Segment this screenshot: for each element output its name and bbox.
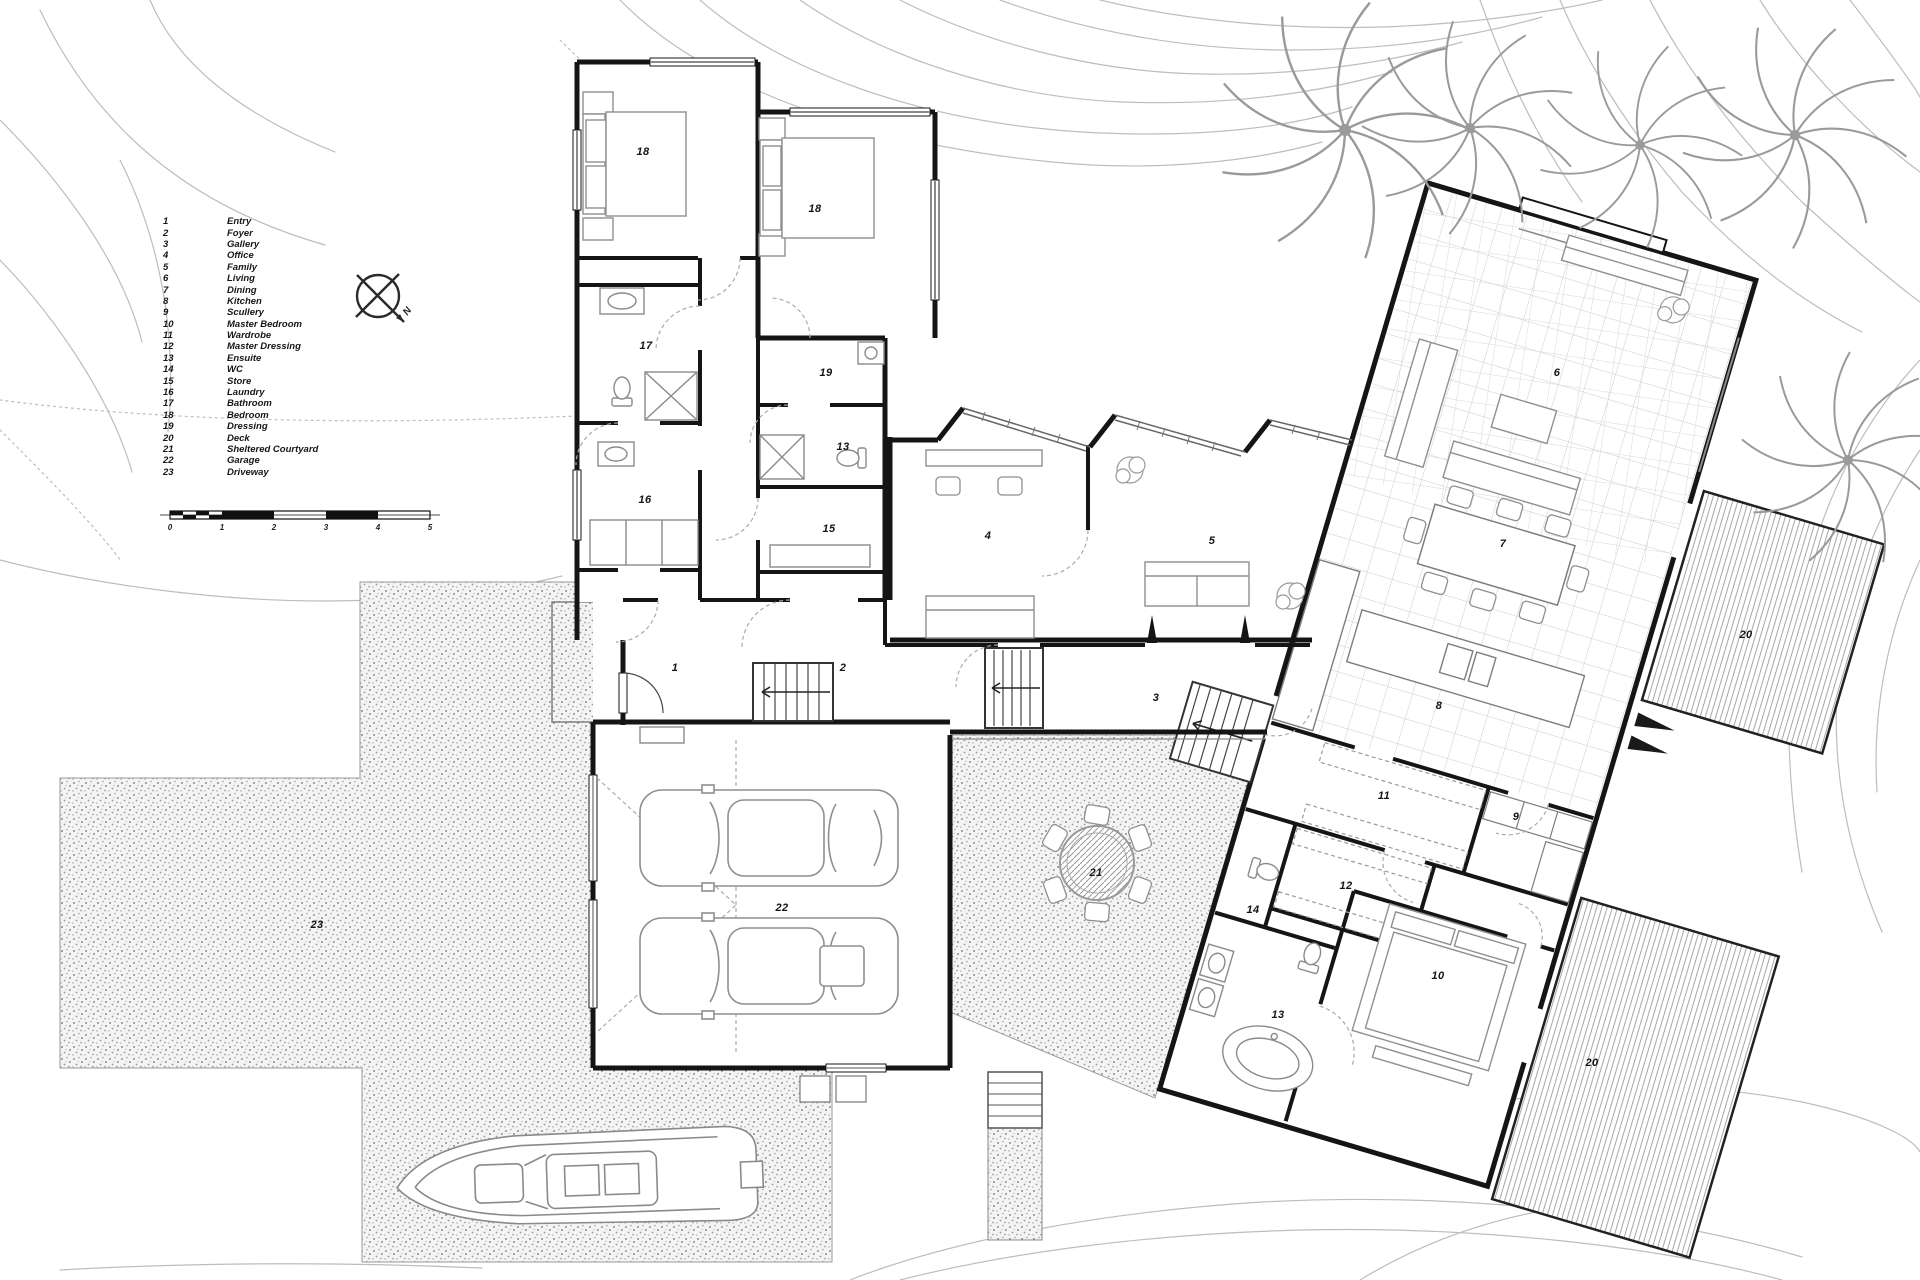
desk-chair bbox=[936, 477, 960, 495]
legend-row: 5Family bbox=[163, 262, 318, 273]
legend-row: 9Scullery bbox=[163, 307, 318, 318]
room-label-ensuite: 13 bbox=[1271, 1009, 1284, 1021]
floor-plan-drawing bbox=[0, 0, 1920, 1280]
legend-label: Kitchen bbox=[227, 296, 262, 307]
legend-row: 16Laundry bbox=[163, 387, 318, 398]
legend-number: 22 bbox=[163, 455, 227, 466]
legend-label: Deck bbox=[227, 433, 250, 444]
legend-label: Foyer bbox=[227, 228, 253, 239]
legend-label: Sheltered Courtyard bbox=[227, 444, 318, 455]
room-label-bathroom: 17 bbox=[639, 340, 652, 352]
legend-label: Dining bbox=[227, 285, 257, 296]
scale-tick: 2 bbox=[272, 523, 276, 532]
legend-number: 23 bbox=[163, 467, 227, 478]
legend-row: 4Office bbox=[163, 250, 318, 261]
legend-number: 7 bbox=[163, 285, 227, 296]
legend-row: 20Deck bbox=[163, 432, 318, 443]
room-label-scullery: 9 bbox=[1513, 811, 1520, 823]
legend-label: Ensuite bbox=[227, 353, 261, 364]
legend-row: 21Sheltered Courtyard bbox=[163, 444, 318, 455]
legend-number: 6 bbox=[163, 273, 227, 284]
legend-row: 23Driveway bbox=[163, 467, 318, 478]
legend-label: Driveway bbox=[227, 467, 269, 478]
family-furniture bbox=[1145, 562, 1249, 606]
palm-tree bbox=[1670, 7, 1920, 265]
legend-label: WC bbox=[227, 364, 243, 375]
legend-row: 22Garage bbox=[163, 455, 318, 466]
legend-row: 6Living bbox=[163, 273, 318, 284]
room-label-ensuite-upper: 13 bbox=[836, 441, 849, 453]
desk-chair bbox=[998, 477, 1022, 495]
walkway bbox=[988, 1128, 1042, 1240]
legend-number: 8 bbox=[163, 296, 227, 307]
room-label-deck-lower: 20 bbox=[1585, 1057, 1598, 1069]
room-label-living: 6 bbox=[1554, 367, 1561, 379]
legend-number: 12 bbox=[163, 341, 227, 352]
legend-row: 2Foyer bbox=[163, 227, 318, 238]
legend-row: 8Kitchen bbox=[163, 296, 318, 307]
room-label-laundry: 16 bbox=[638, 494, 651, 506]
legend-label: Bathroom bbox=[227, 398, 272, 409]
legend-row: 19Dressing bbox=[163, 421, 318, 432]
gallery-stair bbox=[985, 648, 1043, 728]
floor-plan-sheet: 1Entry 2Foyer 3Gallery 4Office 5Family 6… bbox=[0, 0, 1920, 1280]
legend-row: 10Master Bedroom bbox=[163, 319, 318, 330]
foyer-stair bbox=[753, 663, 833, 721]
legend-number: 3 bbox=[163, 239, 227, 250]
legend-number: 10 bbox=[163, 319, 227, 330]
deck-steps bbox=[1627, 713, 1676, 761]
room-label-driveway: 23 bbox=[310, 919, 323, 931]
legend-number: 15 bbox=[163, 376, 227, 387]
room-label-dining: 7 bbox=[1500, 538, 1507, 550]
legend-number: 9 bbox=[163, 307, 227, 318]
room-label-entry: 1 bbox=[672, 662, 679, 674]
scale-bar bbox=[160, 511, 440, 519]
legend-label: Garage bbox=[227, 455, 260, 466]
room-label-deck-upper: 20 bbox=[1739, 629, 1752, 641]
legend-row: 3Gallery bbox=[163, 239, 318, 250]
bedroom-b-bed bbox=[759, 118, 874, 256]
legend-label: Living bbox=[227, 273, 255, 284]
legend-label: Entry bbox=[227, 216, 251, 227]
legend-number: 16 bbox=[163, 387, 227, 398]
room-label-kitchen: 8 bbox=[1436, 700, 1443, 712]
room-label-store: 15 bbox=[822, 523, 835, 535]
room-label-foyer: 2 bbox=[840, 662, 847, 674]
legend-label: Office bbox=[227, 250, 254, 261]
garden-steps bbox=[800, 1076, 866, 1102]
legend-number: 1 bbox=[163, 216, 227, 227]
legend-number: 20 bbox=[163, 433, 227, 444]
room-label-office: 4 bbox=[985, 530, 992, 542]
room-label-master-bedroom: 10 bbox=[1431, 970, 1444, 982]
legend-number: 11 bbox=[163, 330, 227, 341]
legend-number: 19 bbox=[163, 421, 227, 432]
legend-label: Wardrobe bbox=[227, 330, 271, 341]
legend-label: Dressing bbox=[227, 421, 268, 432]
room-label-garage: 22 bbox=[775, 902, 788, 914]
legend-label: Gallery bbox=[227, 239, 259, 250]
room-label-wc: 14 bbox=[1246, 904, 1259, 916]
room-label-gallery: 3 bbox=[1153, 692, 1160, 704]
legend-row: 17Bathroom bbox=[163, 398, 318, 409]
car-2 bbox=[640, 913, 898, 1019]
legend-number: 13 bbox=[163, 353, 227, 364]
legend-label: Family bbox=[227, 262, 257, 273]
legend-number: 2 bbox=[163, 228, 227, 239]
legend-number: 18 bbox=[163, 410, 227, 421]
legend-row: 11Wardrobe bbox=[163, 330, 318, 341]
legend-label: Master Bedroom bbox=[227, 319, 302, 330]
scale-tick: 1 bbox=[220, 523, 224, 532]
room-label-dressing: 19 bbox=[819, 367, 832, 379]
north-arrow bbox=[356, 274, 404, 322]
legend-row: 14WC bbox=[163, 364, 318, 375]
legend-row: 18Bedroom bbox=[163, 410, 318, 421]
room-label-master-dressing: 12 bbox=[1339, 880, 1352, 892]
terrace-stair bbox=[988, 1072, 1042, 1128]
building-angled-wing bbox=[1076, 147, 1920, 1258]
bathroom-toilet bbox=[612, 377, 632, 406]
room-label-sheltered-courtyard: 21 bbox=[1089, 867, 1102, 879]
scale-tick: 4 bbox=[376, 523, 380, 532]
legend-row: 7Dining bbox=[163, 284, 318, 295]
legend-number: 21 bbox=[163, 444, 227, 455]
legend-label: Bedroom bbox=[227, 410, 269, 421]
legend-row: 1Entry bbox=[163, 216, 318, 227]
legend-row: 12Master Dressing bbox=[163, 341, 318, 352]
scale-tick: 5 bbox=[428, 523, 432, 532]
car-1 bbox=[640, 785, 898, 891]
legend-number: 17 bbox=[163, 398, 227, 409]
legend-label: Master Dressing bbox=[227, 341, 301, 352]
legend-label: Store bbox=[227, 376, 251, 387]
legend-number: 14 bbox=[163, 364, 227, 375]
legend-row: 15Store bbox=[163, 375, 318, 386]
scale-tick: 3 bbox=[324, 523, 328, 532]
room-label-bedroom-b: 18 bbox=[808, 203, 821, 215]
legend-label: Scullery bbox=[227, 307, 264, 318]
scale-tick: 0 bbox=[168, 523, 172, 532]
legend-row: 13Ensuite bbox=[163, 353, 318, 364]
legend: 1Entry 2Foyer 3Gallery 4Office 5Family 6… bbox=[163, 216, 318, 478]
room-label-family: 5 bbox=[1209, 535, 1216, 547]
room-label-bedroom-a: 18 bbox=[636, 146, 649, 158]
room-label-wardrobe: 11 bbox=[1378, 790, 1390, 802]
legend-label: Laundry bbox=[227, 387, 264, 398]
legend-number: 5 bbox=[163, 262, 227, 273]
legend-number: 4 bbox=[163, 250, 227, 261]
